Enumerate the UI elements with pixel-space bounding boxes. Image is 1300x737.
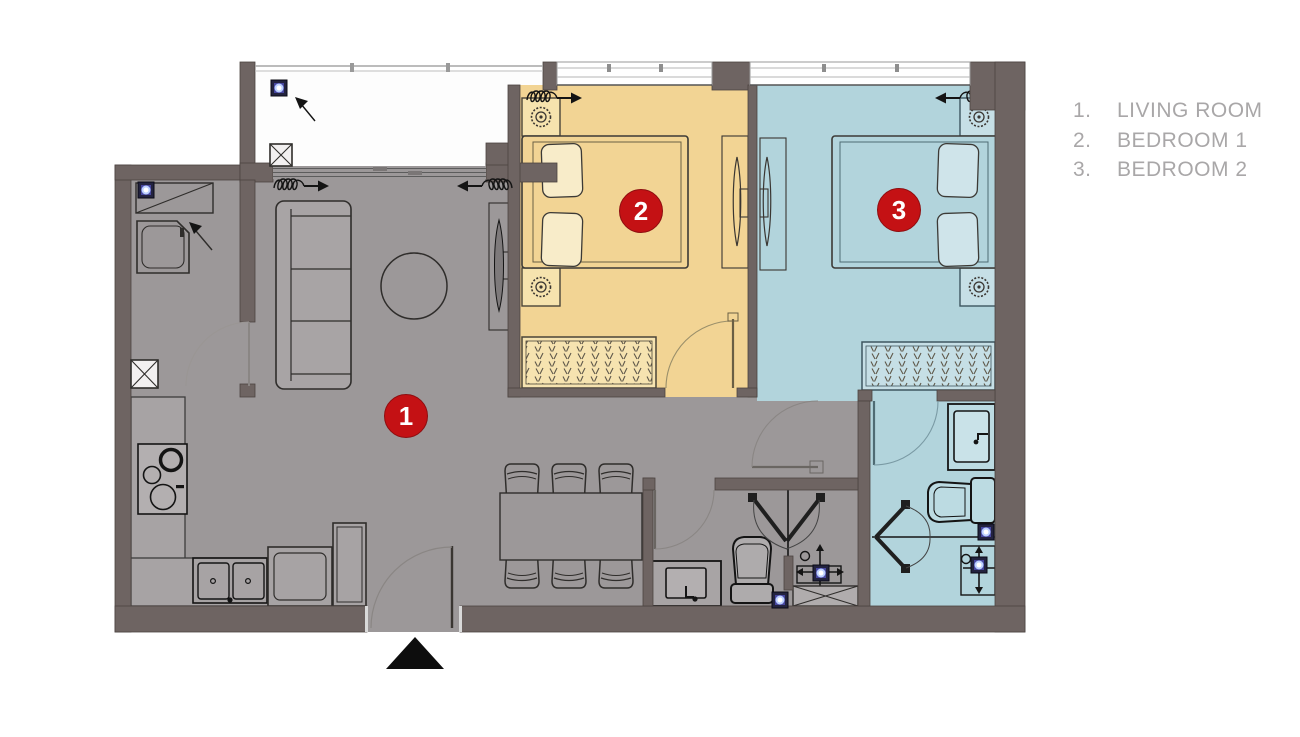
room-number-living: 1 [399,401,413,431]
legend-label: LIVING ROOM [1117,99,1263,122]
ceiling-light-marker [138,182,154,198]
ceiling-light-marker [978,524,994,540]
legend-item-bedroom1: 2. BEDROOM 1 [1073,129,1248,152]
room-number-bedroom2: 3 [892,195,906,225]
legend-item-bedroom2: 3. BEDROOM 2 [1073,158,1248,181]
bathroom2-vanity [948,404,995,470]
wardrobe-bedroom2 [862,342,995,390]
legend: 1. LIVING ROOM 2. BEDROOM 1 3. BEDROOM 2 [1073,99,1263,181]
shaft-column [270,144,292,166]
ceiling-light-marker [971,557,987,573]
balcony-railing [255,63,543,72]
entry-jamb [459,606,462,632]
floor-plan: 1 2 3 1. LIVING ROOM 2. BEDROOM 1 3. BED… [0,0,1300,737]
window-bedroom1 [557,62,712,85]
legend-index: 2. [1073,129,1092,152]
bathroom1-vanity [651,561,721,606]
legend-label: BEDROOM 2 [1117,158,1248,181]
ceiling-light-marker [772,592,788,608]
bed-bedroom1 [522,136,688,268]
ceiling-light-marker [271,80,287,96]
legend-label: BEDROOM 1 [1117,129,1248,152]
floor-plan-canvas: 1 2 3 1. LIVING ROOM 2. BEDROOM 1 3. BED… [0,0,1300,737]
entry-threshold-floor [367,606,460,632]
pillow [937,212,979,266]
pillow [541,212,583,266]
room-marker-bedroom1: 2 [620,190,663,233]
room-number-bedroom1: 2 [634,196,648,226]
pillow [937,143,979,197]
toilet-bathroom1 [731,537,773,603]
legend-index: 1. [1073,99,1092,122]
cooktop [138,444,187,514]
toilet-bathroom2 [928,478,995,523]
shaft-column [131,360,158,388]
room-marker-bedroom2: 3 [878,189,921,232]
coffee-table [381,253,447,319]
room-marker-living: 1 [385,395,428,438]
sofa [276,201,351,389]
entry-jamb [365,606,368,632]
entry-cabinet [333,523,366,606]
window-bedroom2 [750,62,970,85]
entrance-marker [386,637,444,669]
ceiling-light-marker [813,565,829,581]
legend-item-living-room: 1. LIVING ROOM [1073,99,1263,122]
legend-index: 3. [1073,158,1092,181]
dining-table [500,493,642,560]
wardrobe-bedroom1 [522,337,656,388]
dining-set [500,464,642,588]
fridge [268,547,332,606]
balcony-sliding-door [273,166,486,179]
